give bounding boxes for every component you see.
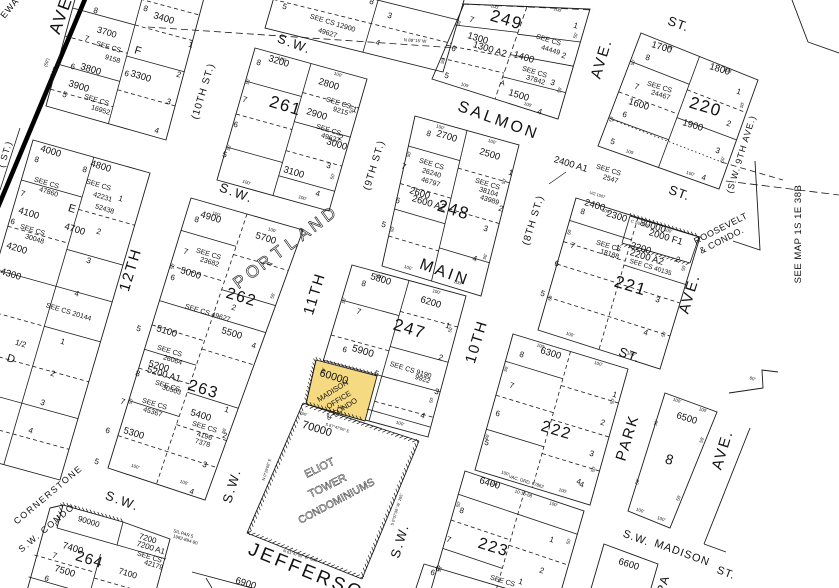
svg-text:SEE MAP 1S 1E 38B: SEE MAP 1S 1E 38B <box>793 185 804 284</box>
